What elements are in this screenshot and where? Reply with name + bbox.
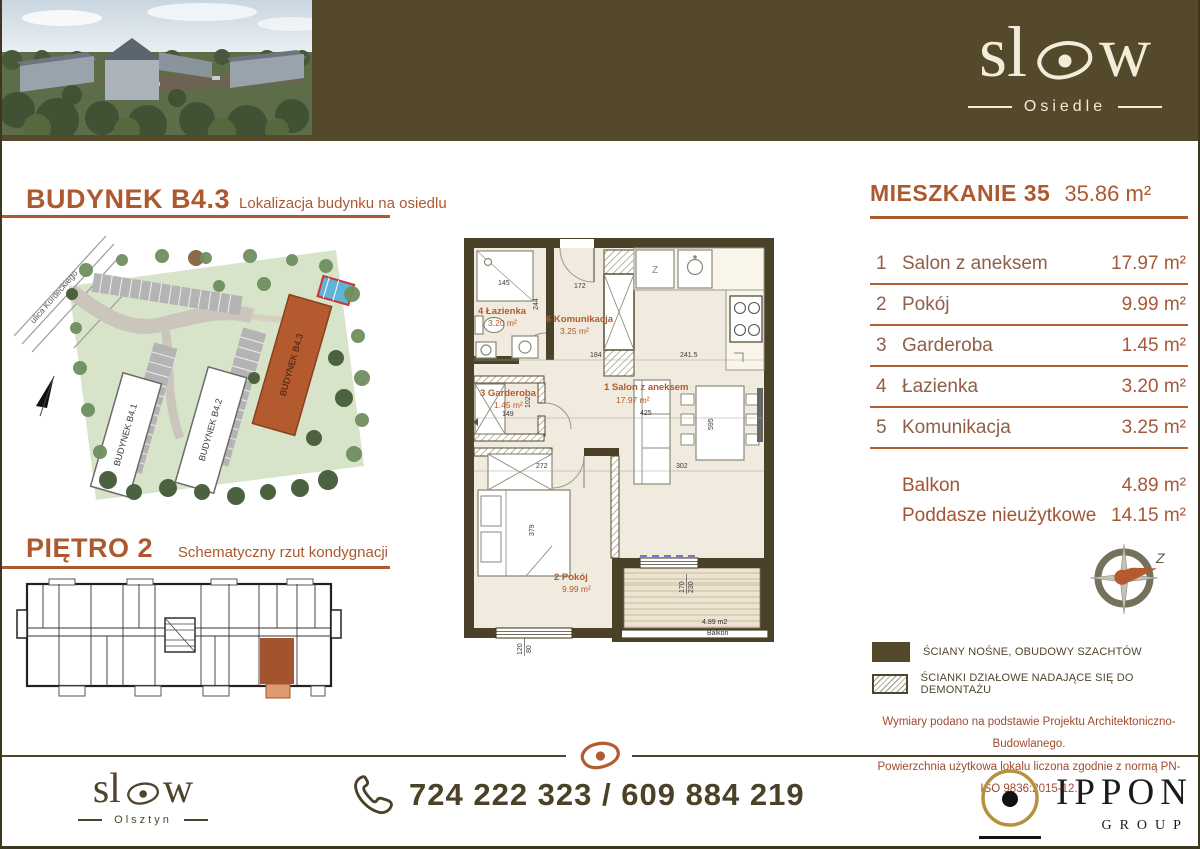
logo-text-w: w [1099,16,1151,88]
svg-text:6 Komunikacja: 6 Komunikacja [546,314,614,325]
svg-text:2 Pokój: 2 Pokój [554,572,588,583]
room-row-lazienka: 4 Łazienka 3.20 m² [870,367,1188,408]
building-subtitle: Lokalizacja budynku na osiedlu [239,195,447,212]
schematic-stair-core [165,618,195,652]
footer-logo-dash-left [78,819,102,821]
room-list: 1 Salon z aneksem 17.97 m² 2 Pokój 9.99 … [870,244,1188,449]
floor-section-heading: PIĘTRO 2 Schematyczny rzut kondygnacji [26,533,388,564]
slow-eye-icon [124,780,160,808]
legend-row-hatch: ŚCIANKI DZIAŁOWE NADAJĄCE SIĘ DO DEMONTA… [872,672,1188,696]
svg-text:595: 595 [708,418,715,430]
svg-text:17.97 m²: 17.97 m² [616,395,650,405]
plan-balcony [612,560,774,642]
ippon-circle-icon [974,762,1046,846]
svg-text:302: 302 [676,463,688,470]
fridge-label: Z [652,265,658,276]
slow-eye-icon [575,739,623,773]
phone-icon [350,772,396,818]
svg-text:170: 170 [679,581,686,593]
legend-swatch-load-bearing [872,642,910,662]
header-band: sl w Osiedle [2,0,1200,141]
schematic-highlighted-balcony [266,684,290,698]
building-title-underline [2,215,390,218]
logo-text-sl: sl [979,16,1027,88]
svg-text:379: 379 [529,524,536,536]
dim-fraction-120-80: 120 80 [517,638,533,656]
apartment-total-area: 35.86 m² [1064,181,1151,207]
balcony-door [640,556,698,568]
svg-text:244: 244 [533,298,540,310]
svg-text:272: 272 [536,463,548,470]
svg-text:1 Salon z aneksem: 1 Salon z aneksem [604,382,688,393]
compass-icon: Z [1082,532,1172,622]
ippon-name: IPPON [1056,774,1193,811]
development-aerial-photo [2,0,312,135]
site-location-map: ulica Kordeckiego BUDYNEK B4.1 BUDYNEK B… [14,228,399,518]
apartment-header: MIESZKANIE 35 35.86 m² [870,180,1188,219]
phone-number: 724 222 323 / 609 884 219 [409,777,805,813]
floor-title-underline [2,566,390,569]
svg-text:149: 149 [502,411,514,418]
footnote-line-1: Wymiary podano na podstawie Projektu Arc… [868,711,1190,756]
ippon-sub: GROUP [1101,818,1188,834]
hall-wardrobe [604,274,634,350]
svg-text:80: 80 [526,645,533,653]
legend-swatch-partition [872,674,908,694]
extra-row-poddasze: Poddasze nieużytkowe 14.15 m² [870,501,1188,531]
pokoj-window [496,628,572,638]
legend-row-solid: ŚCIANY NOŚNE, OBUDOWY SZACHTÓW [872,642,1188,662]
svg-text:4 Łazienka: 4 Łazienka [478,306,527,317]
svg-text:4.89 m2: 4.89 m2 [702,619,727,626]
svg-text:184: 184 [590,352,602,359]
contact-phone: 724 222 323 / 609 884 219 [350,772,805,818]
footer-logo-subtitle: Olsztyn [114,814,172,826]
svg-text:425: 425 [640,410,652,417]
svg-text:120: 120 [517,643,524,655]
apartment-title: MIESZKANIE 35 [870,180,1050,207]
footer-divider-glyph [566,736,632,776]
plan-legend: ŚCIANY NOŚNE, OBUDOWY SZACHTÓW ŚCIANKI D… [872,642,1188,706]
footer-logo-text-w: w [163,768,193,810]
map-north-arrow [36,376,54,416]
svg-text:172: 172 [574,283,586,290]
flyer-page: sl w Osiedle BUDYNEK B4.3 Lokalizacja bu… [0,0,1200,849]
building-title: BUDYNEK B4.3 [26,184,230,215]
compass-west-label: Z [1155,550,1165,566]
svg-text:3.20 m²: 3.20 m² [488,318,517,328]
logo-subtitle: Osiedle [1024,98,1106,116]
slow-osiedle-logo: sl w Osiedle [930,16,1200,116]
svg-text:1.45 m²: 1.45 m² [494,400,523,410]
svg-text:9.99 m²: 9.99 m² [562,584,591,594]
room-row-garderoba: 3 Garderoba 1.45 m² [870,326,1188,367]
apartment-details-panel: MIESZKANIE 35 35.86 m² 1 Salon z aneksem… [870,180,1188,531]
footer-logo-text-sl: sl [93,768,121,810]
floor-subtitle: Schematyczny rzut kondygnacji [178,544,388,561]
svg-text:241.5: 241.5 [680,352,698,359]
schematic-highlighted-unit [260,638,294,684]
logo-dash-left [968,106,1012,108]
slow-olsztyn-logo: sl w Olsztyn [78,768,208,826]
floor-title: PIĘTRO 2 [26,533,153,564]
tv [757,388,763,442]
room-row-pokoj: 2 Pokój 9.99 m² [870,285,1188,326]
extra-row-balkon: Balkon 4.89 m² [870,471,1188,501]
extras-list: Balkon 4.89 m² Poddasze nieużytkowe 14.1… [870,471,1188,531]
room-row-komunikacja: 5 Komunikacja 3.25 m² [870,408,1188,449]
building-section-heading: BUDYNEK B4.3 Lokalizacja budynku na osie… [26,184,447,215]
slow-eye-icon [1032,37,1094,85]
apartment-floor-plan: Z [464,238,774,658]
footer-logo-dash-right [184,819,208,821]
ippon-group-logo: IPPON GROUP [974,762,1193,846]
svg-text:230: 230 [688,581,695,593]
svg-text:Balkon: Balkon [707,630,729,637]
svg-text:102: 102 [525,396,532,408]
room-row-salon: 1 Salon z aneksem 17.97 m² [870,244,1188,285]
svg-text:145: 145 [498,280,510,287]
floor-schematic [15,578,347,702]
svg-text:3.25 m²: 3.25 m² [560,326,589,336]
logo-dash-right [1118,106,1162,108]
